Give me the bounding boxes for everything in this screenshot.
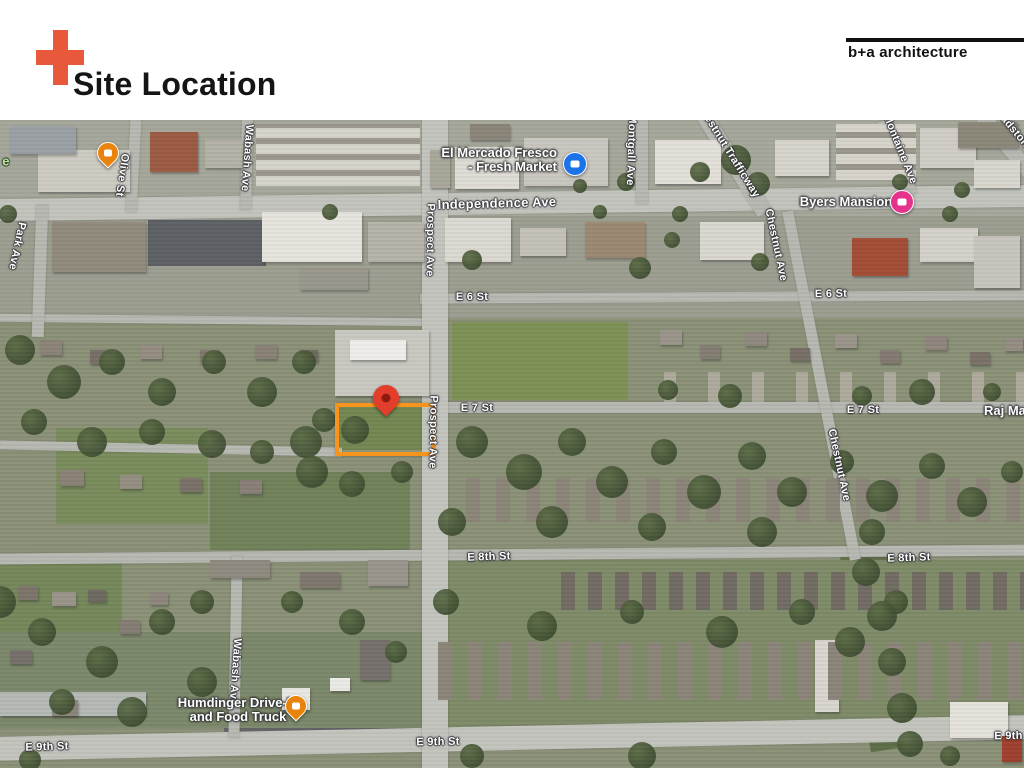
street-label: E 7 St — [847, 404, 879, 416]
street-label: E 8th St — [467, 550, 511, 564]
tree — [954, 182, 970, 198]
street-label: E 9th St — [25, 740, 69, 754]
tree — [897, 731, 923, 757]
building — [300, 572, 340, 588]
tree — [558, 428, 586, 456]
tree — [651, 439, 677, 465]
tree — [28, 618, 56, 646]
building — [240, 480, 262, 494]
grocery-marker-icon — [563, 152, 587, 176]
poi-label-raj-mahal: Raj Ma H — [984, 404, 1024, 418]
logo-rule — [846, 38, 1024, 42]
tree — [573, 179, 587, 193]
street-label: E 7 St — [461, 402, 493, 414]
tree — [957, 487, 987, 517]
building — [330, 678, 350, 691]
tree — [21, 409, 47, 435]
tree — [718, 384, 742, 408]
building — [700, 345, 720, 359]
house-row — [650, 372, 1024, 402]
restaurant-marker-glyph — [292, 703, 300, 710]
tree — [867, 601, 897, 631]
tree — [281, 591, 303, 613]
building — [88, 590, 106, 602]
tree — [117, 697, 147, 727]
tree — [859, 519, 885, 545]
tree — [187, 667, 217, 697]
lodging-marker-icon — [890, 190, 914, 214]
building — [350, 340, 406, 360]
poi-label-line: and Food Truck — [178, 710, 299, 724]
street-label: Independence Ave — [437, 194, 556, 212]
tree — [629, 257, 651, 279]
building — [18, 586, 38, 600]
tree — [596, 466, 628, 498]
building — [10, 126, 76, 154]
building — [974, 160, 1020, 188]
page-title: Site Location — [73, 66, 277, 103]
tree — [47, 365, 81, 399]
site-map-aerial: Independence AveE 6 StE 6 StE 7 StE 7 St… — [0, 120, 1024, 768]
grocery-marker-glyph — [571, 161, 580, 168]
poi-label-line: Humdinger Drive-In — [178, 696, 299, 710]
poi-label-el-mercado-fresco: El Mercado Fresco- Fresh Market — [441, 146, 557, 174]
building — [470, 124, 510, 140]
tree — [391, 461, 413, 483]
tree — [940, 746, 960, 766]
slide-header: Site Location b+a architecture — [0, 0, 1024, 120]
tree — [835, 627, 865, 657]
terrain-patch — [148, 220, 266, 266]
building — [520, 228, 566, 256]
building — [52, 222, 146, 272]
tree — [250, 440, 274, 464]
tree — [247, 377, 277, 407]
building — [120, 475, 142, 489]
road — [636, 120, 648, 204]
tree — [852, 558, 880, 586]
tree — [456, 426, 488, 458]
site-pin-dot — [380, 392, 393, 405]
house-row — [256, 124, 420, 186]
building — [205, 140, 243, 168]
building — [660, 330, 682, 345]
building — [180, 478, 202, 492]
poi-label-line: Raj Ma H — [984, 404, 1024, 418]
poi-label-line: El Mercado Fresco — [441, 146, 557, 160]
tree — [536, 506, 568, 538]
poi-label-byers-mansion: Byers Mansion — [800, 195, 892, 209]
tree — [527, 611, 557, 641]
tree — [198, 430, 226, 458]
tree — [506, 454, 542, 490]
building — [150, 592, 168, 605]
building — [368, 222, 424, 262]
street-label: E 6 St — [456, 291, 488, 303]
tree — [887, 693, 917, 723]
building — [262, 212, 362, 262]
tree — [433, 589, 459, 615]
street-label: E 8th St — [887, 551, 931, 565]
tree — [706, 616, 738, 648]
tree — [687, 475, 721, 509]
building — [745, 332, 767, 346]
tree — [852, 386, 872, 406]
tree — [789, 599, 815, 625]
poi-label-line: - Fresh Market — [441, 160, 557, 174]
building — [920, 228, 978, 262]
building — [120, 620, 140, 634]
poi-label-line: Byers Mansion — [800, 195, 892, 209]
tree — [292, 350, 316, 374]
building — [835, 334, 857, 348]
tree — [202, 350, 226, 374]
building — [368, 560, 408, 586]
tree — [747, 517, 777, 547]
building — [210, 560, 270, 578]
tree — [878, 648, 906, 676]
tree — [593, 205, 607, 219]
tree — [738, 442, 766, 470]
street-label: E 6 St — [815, 288, 848, 301]
tree — [983, 383, 1001, 401]
tree — [385, 641, 407, 663]
building — [40, 340, 62, 355]
building — [300, 268, 368, 290]
tree — [296, 456, 328, 488]
tree — [77, 427, 107, 457]
tree — [49, 689, 75, 715]
tree — [690, 162, 710, 182]
street-label: Montgall Ave — [624, 120, 638, 186]
tree — [1001, 461, 1023, 483]
tree — [5, 335, 35, 365]
tree — [638, 513, 666, 541]
plus-horizontal-bar — [36, 50, 84, 65]
building — [52, 592, 76, 606]
tree — [86, 646, 118, 678]
house-row — [432, 642, 1024, 700]
park-label: e — [2, 154, 10, 169]
tree — [462, 250, 482, 270]
tree — [339, 471, 365, 497]
building — [925, 336, 947, 350]
building — [10, 650, 32, 664]
tree — [148, 378, 176, 406]
building — [790, 348, 810, 361]
tree — [664, 232, 680, 248]
logo-text: b+a architecture — [848, 44, 968, 61]
building — [775, 140, 829, 176]
building — [1005, 338, 1023, 351]
tree — [312, 408, 336, 432]
street-label: E 9th St — [994, 730, 1024, 743]
tree — [628, 742, 656, 768]
tree — [190, 590, 214, 614]
street-label: Prospect Ave — [423, 203, 436, 276]
building — [880, 350, 900, 363]
poi-label-humdinger: Humdinger Drive-Inand Food Truck — [178, 696, 299, 724]
building — [974, 236, 1020, 288]
building — [60, 470, 84, 486]
tree — [672, 206, 688, 222]
tree — [909, 379, 935, 405]
street-label: E 9th St — [416, 736, 460, 749]
tree — [942, 206, 958, 222]
building — [852, 238, 908, 276]
tree — [620, 600, 644, 624]
tree — [339, 609, 365, 635]
building — [255, 345, 277, 359]
tree — [919, 453, 945, 479]
cafe-marker-glyph — [104, 150, 112, 157]
tree — [149, 609, 175, 635]
building — [970, 352, 990, 365]
street-label: Prospect Ave — [426, 395, 439, 468]
tree — [438, 508, 466, 536]
tree — [751, 253, 769, 271]
tree — [866, 480, 898, 512]
tree — [99, 349, 125, 375]
tree — [139, 419, 165, 445]
tree — [290, 426, 322, 458]
building — [140, 345, 162, 359]
slide: Site Location b+a architecture Independe… — [0, 0, 1024, 768]
building — [585, 222, 645, 258]
tree — [460, 744, 484, 768]
terrain-patch — [452, 322, 628, 400]
building — [150, 132, 198, 172]
tree — [777, 477, 807, 507]
lodging-marker-glyph — [898, 199, 907, 206]
tree — [658, 380, 678, 400]
tree — [322, 204, 338, 220]
building — [655, 140, 721, 184]
